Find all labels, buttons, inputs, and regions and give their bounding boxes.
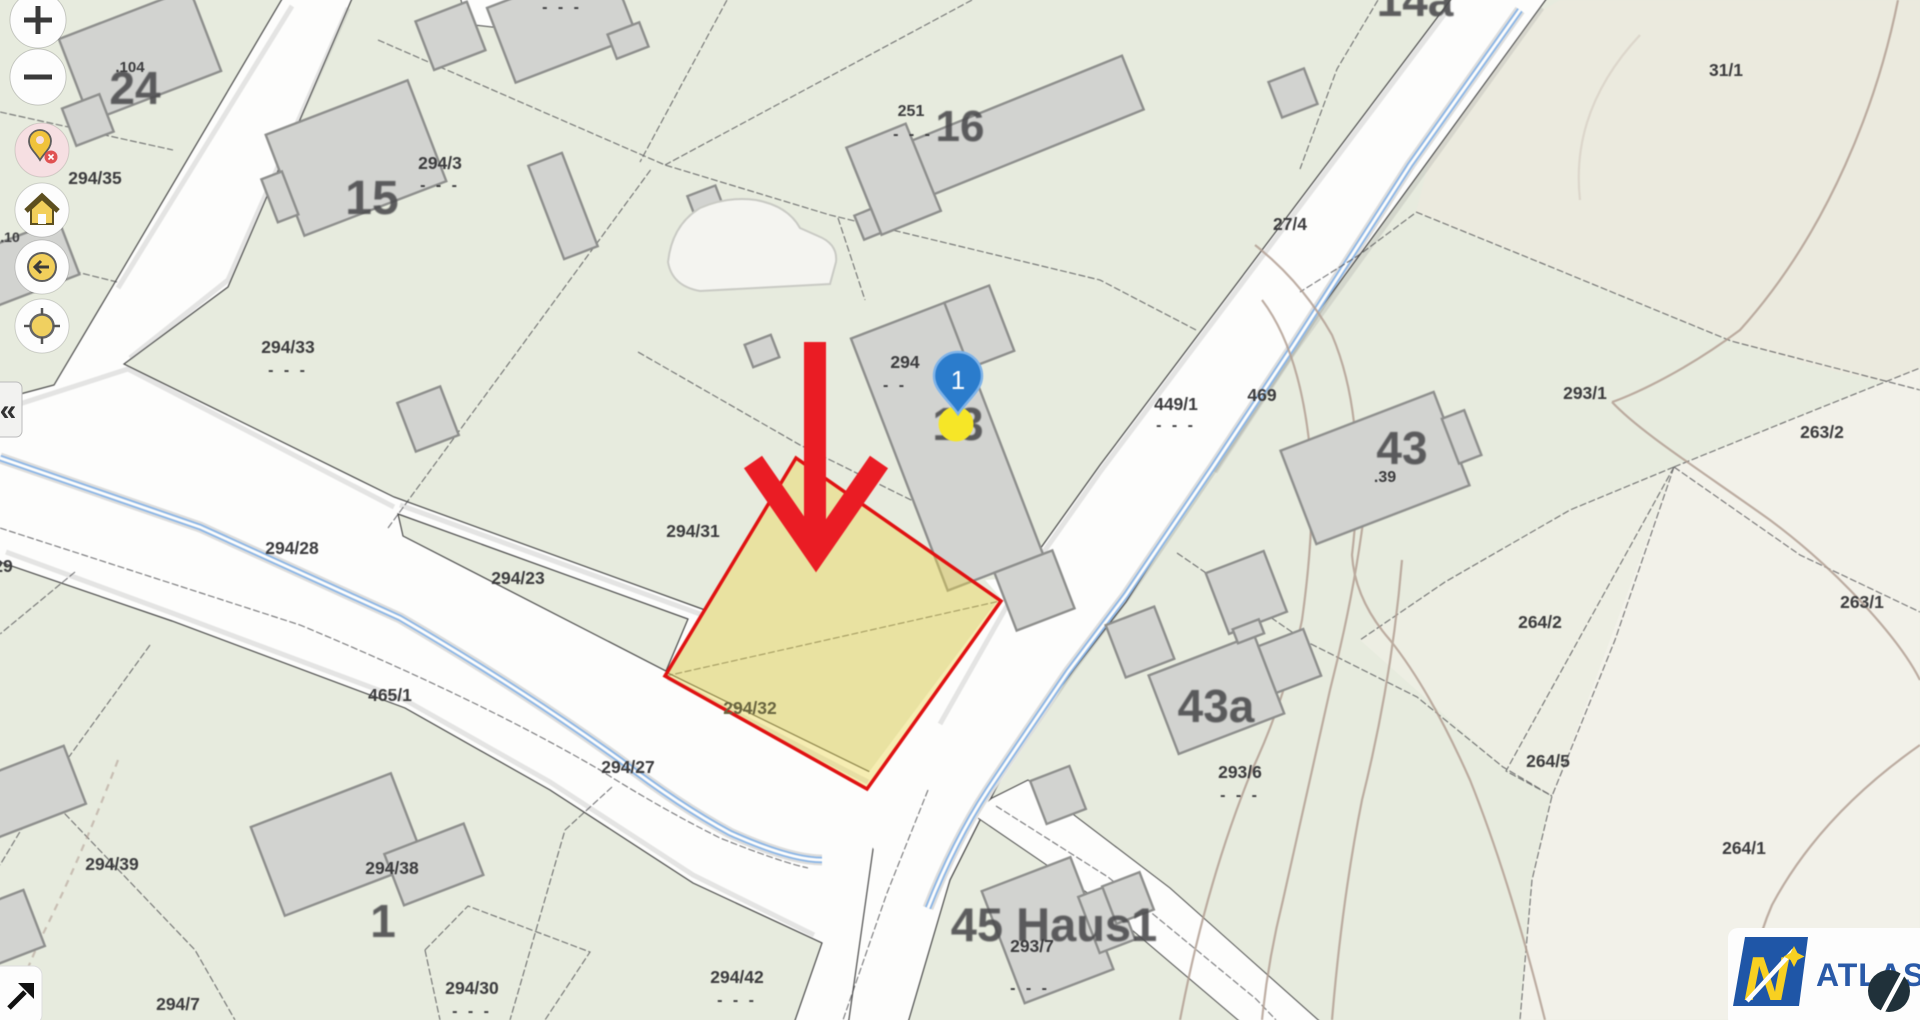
svg-text:43a: 43a: [1178, 680, 1255, 732]
svg-text:294/3: 294/3: [418, 153, 462, 173]
svg-text:294/35: 294/35: [68, 168, 122, 188]
svg-text:1: 1: [951, 365, 965, 395]
svg-text:- - -: - - -: [542, 0, 582, 16]
svg-text:- - -: - - -: [893, 126, 933, 143]
svg-text:293/1: 293/1: [1563, 383, 1607, 403]
svg-text:45 Haus1: 45 Haus1: [951, 898, 1157, 951]
svg-text:.10: .10: [0, 229, 20, 245]
svg-text:251: 251: [898, 103, 925, 120]
svg-text:449/1: 449/1: [1154, 394, 1198, 414]
svg-text:294/23: 294/23: [491, 568, 545, 588]
svg-text:294: 294: [890, 352, 919, 372]
svg-text:- - -: - - -: [420, 177, 460, 194]
svg-text:294/42: 294/42: [710, 967, 764, 987]
svg-text:294/32: 294/32: [723, 698, 777, 718]
svg-text:263/1: 263/1: [1840, 592, 1884, 612]
svg-text:16: 16: [936, 102, 985, 151]
svg-text:«: «: [0, 394, 16, 427]
svg-text:294/39: 294/39: [85, 854, 139, 874]
svg-text:294/38: 294/38: [365, 858, 419, 878]
svg-text:14a: 14a: [1377, 0, 1454, 26]
svg-text:- - -: - - -: [1010, 980, 1050, 997]
svg-text:264/1: 264/1: [1722, 838, 1766, 858]
svg-text:- - -: - - -: [717, 992, 757, 1009]
svg-text:264/5: 264/5: [1526, 751, 1570, 771]
svg-text:294/7: 294/7: [156, 994, 200, 1014]
svg-text:27/4: 27/4: [1273, 214, 1307, 234]
svg-text:294/29: 294/29: [0, 556, 13, 576]
svg-text:31/1: 31/1: [1709, 60, 1743, 80]
svg-text:- - -: - - -: [1220, 787, 1260, 804]
svg-text:264/2: 264/2: [1518, 612, 1562, 632]
svg-text:294/28: 294/28: [265, 538, 319, 558]
svg-text:469: 469: [1247, 385, 1276, 405]
svg-text:294/27: 294/27: [601, 757, 655, 777]
svg-text:15: 15: [345, 172, 398, 225]
svg-text:1: 1: [370, 895, 396, 947]
svg-text:- -: - -: [883, 377, 907, 394]
svg-text:294/31: 294/31: [666, 521, 720, 541]
svg-text:.39: .39: [1374, 469, 1396, 486]
svg-text:- - -: - - -: [452, 1003, 492, 1020]
svg-text:263/2: 263/2: [1800, 422, 1844, 442]
svg-text:294/33: 294/33: [261, 337, 315, 357]
svg-text:43: 43: [1376, 422, 1427, 474]
svg-text:.104: .104: [115, 59, 145, 76]
svg-text:293/7: 293/7: [1010, 936, 1054, 956]
svg-text:- - -: - - -: [1156, 417, 1196, 434]
svg-text:- - -: - - -: [268, 362, 308, 379]
svg-text:293/6: 293/6: [1218, 762, 1262, 782]
svg-text:465/1: 465/1: [368, 685, 412, 705]
svg-text:294/30: 294/30: [445, 978, 499, 998]
